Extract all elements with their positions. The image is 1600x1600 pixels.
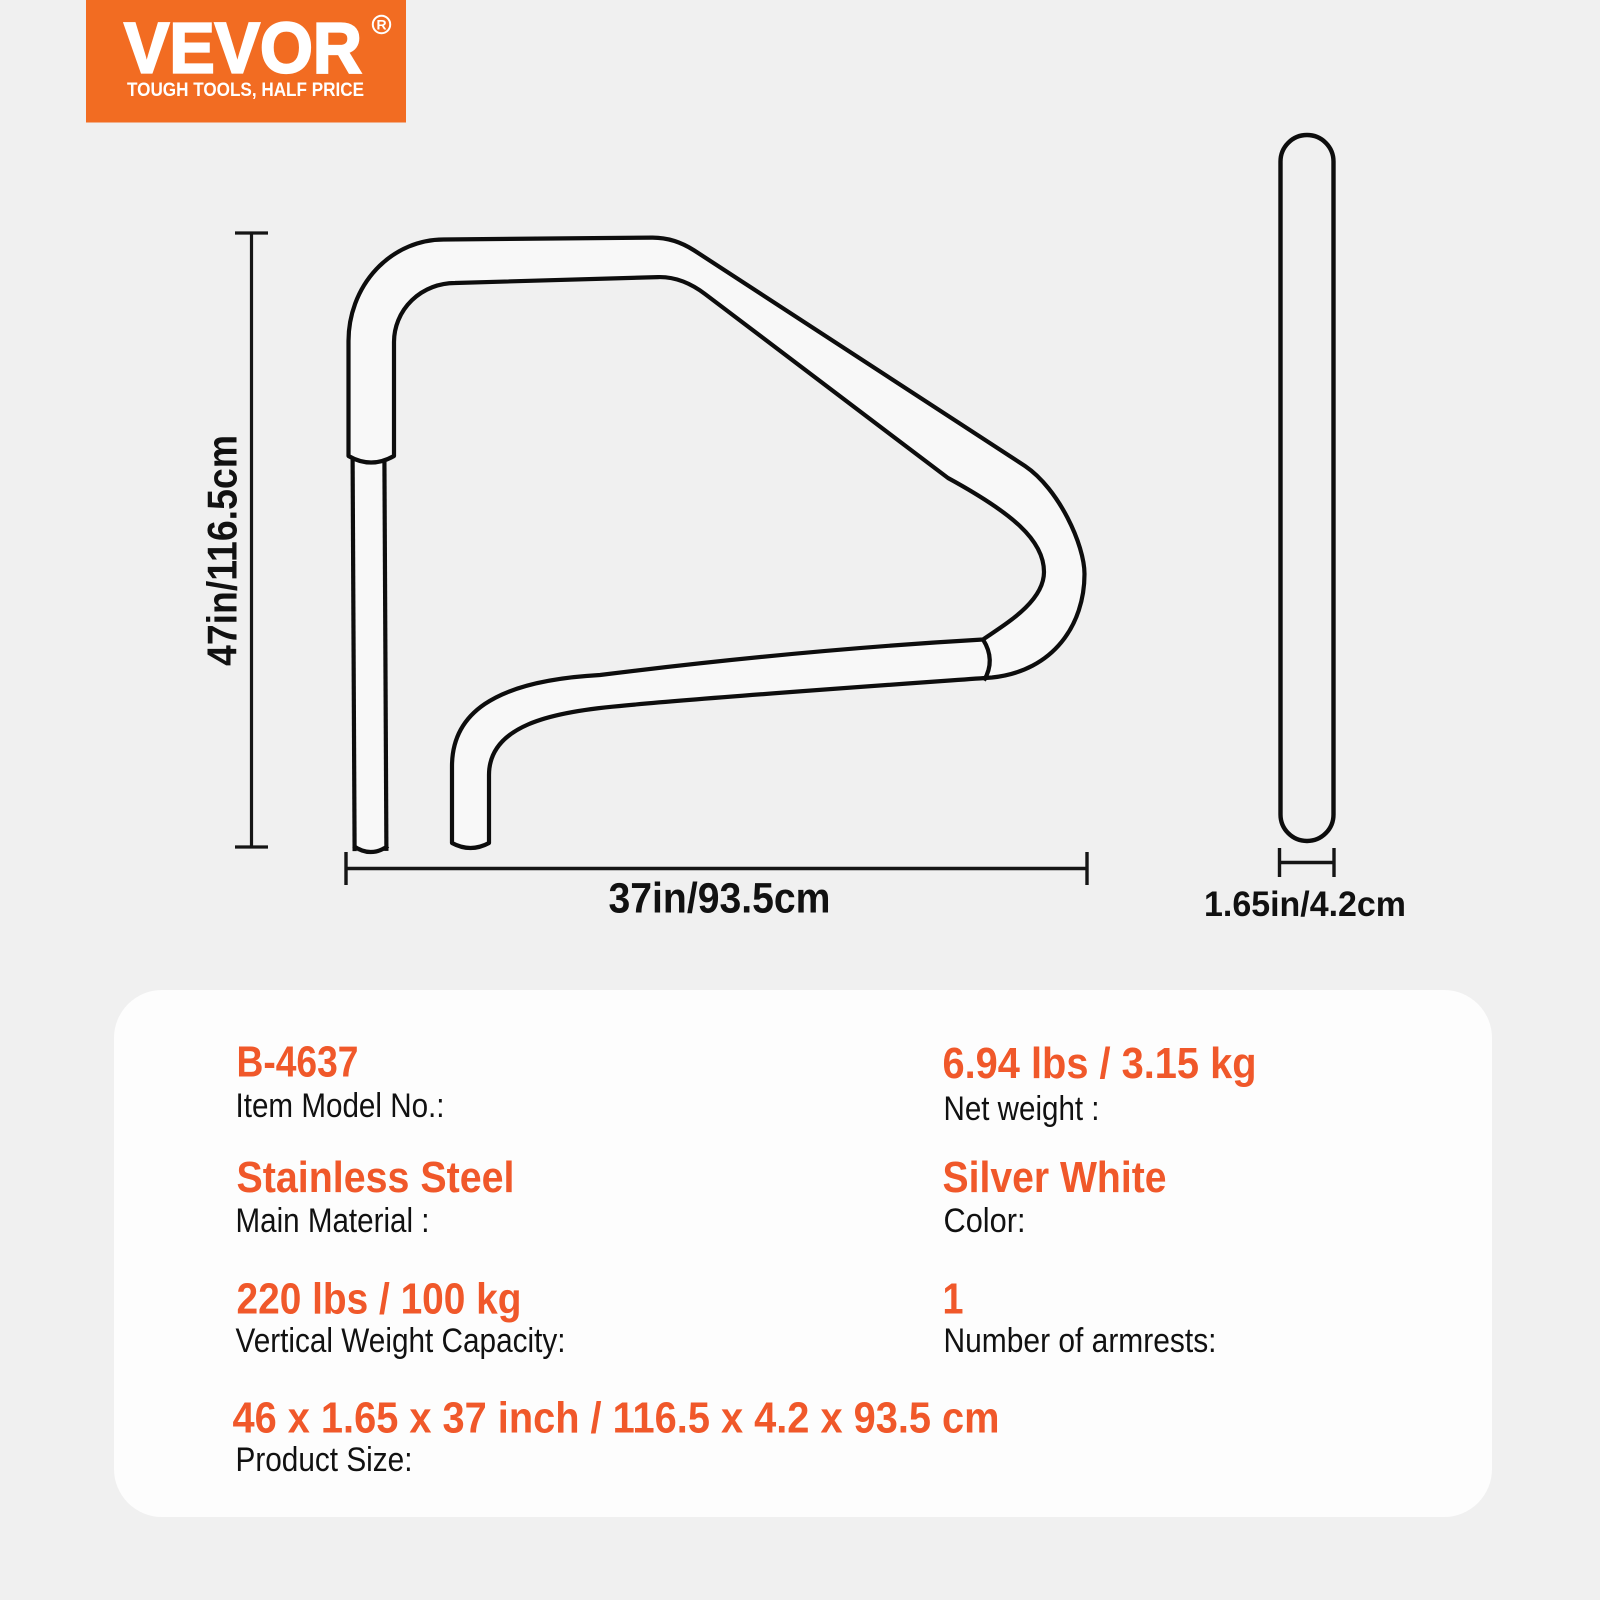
svg-text:VEVOR: VEVOR <box>124 10 362 89</box>
svg-text:6.94 lbs / 3.15 kg: 6.94 lbs / 3.15 kg <box>943 1040 1257 1088</box>
svg-text:TOUGH TOOLS, HALF PRICE: TOUGH TOOLS, HALF PRICE <box>127 79 364 101</box>
svg-text:Item Model No.:: Item Model No.: <box>236 1087 445 1125</box>
svg-text:46 x 1.65 x 37 inch / 116.5 x: 46 x 1.65 x 37 inch / 116.5 x 4.2 x 93.5… <box>233 1395 1000 1443</box>
svg-text:1: 1 <box>943 1276 964 1324</box>
svg-text:Number of armrests:: Number of armrests: <box>944 1322 1217 1360</box>
svg-text:Vertical Weight Capacity:: Vertical Weight Capacity: <box>236 1322 566 1360</box>
svg-text:1.65in/4.2cm: 1.65in/4.2cm <box>1204 884 1406 924</box>
svg-text:220 lbs / 100 kg: 220 lbs / 100 kg <box>237 1276 522 1324</box>
svg-text:B-4637: B-4637 <box>237 1039 359 1087</box>
svg-text:Main Material :: Main Material : <box>236 1202 430 1240</box>
svg-text:37in/93.5cm: 37in/93.5cm <box>609 875 831 922</box>
svg-text:Silver White: Silver White <box>943 1154 1167 1202</box>
svg-text:47in/116.5cm: 47in/116.5cm <box>199 435 246 666</box>
svg-text:R: R <box>376 17 386 33</box>
svg-text:Net weight :: Net weight : <box>944 1090 1100 1128</box>
svg-text:Color:: Color: <box>944 1202 1026 1240</box>
svg-text:Product Size:: Product Size: <box>236 1441 413 1479</box>
svg-text:Stainless Steel: Stainless Steel <box>237 1154 515 1202</box>
